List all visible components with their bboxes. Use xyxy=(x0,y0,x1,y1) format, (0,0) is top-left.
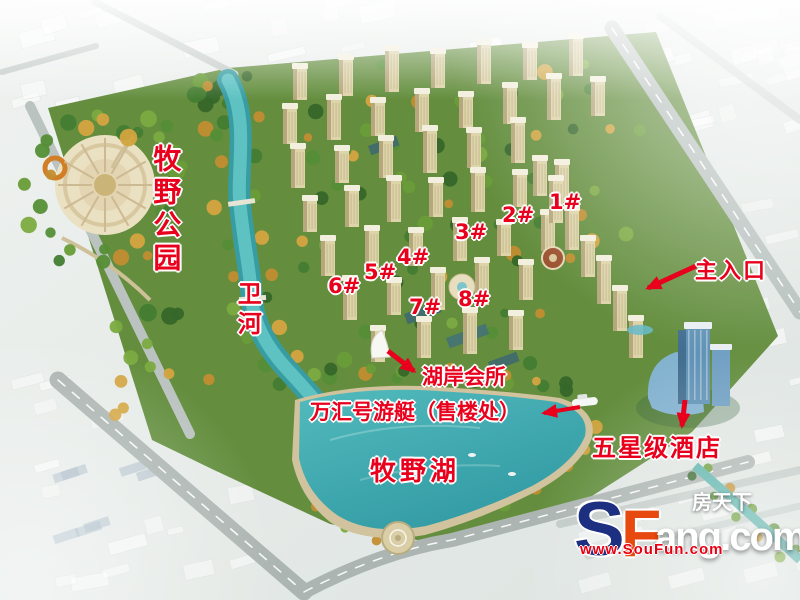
river-label: 卫河 xyxy=(234,281,259,341)
main-entrance-label: 主入口 xyxy=(695,260,767,283)
lake-label: 牧野湖 xyxy=(370,459,460,486)
lakeside-club-label: 湖岸会所 xyxy=(422,366,506,388)
building-number-marker: 3# xyxy=(455,221,487,243)
five-star-hotel-label: 五星级酒店 xyxy=(592,436,722,461)
building-number-marker: 2# xyxy=(502,204,534,226)
building-number-marker: 8# xyxy=(458,288,490,310)
aerial-masterplan-screenshot: 牧野公园 卫河 牧野湖 主入口 湖岸会所 万汇号游艇（售楼处） 五星级酒店 1#… xyxy=(0,0,800,600)
site-plan-rendering xyxy=(0,0,800,600)
building-number-marker: 1# xyxy=(549,191,581,213)
building-number-marker: 6# xyxy=(328,275,360,297)
building-number-marker: 5# xyxy=(364,261,396,283)
yacht-sales-office-label: 万汇号游艇（售楼处） xyxy=(310,401,520,423)
park-label: 牧野公园 xyxy=(151,144,180,276)
building-number-marker: 4# xyxy=(397,246,429,268)
atmospheric-haze xyxy=(0,0,800,600)
building-number-marker: 7# xyxy=(409,296,441,318)
